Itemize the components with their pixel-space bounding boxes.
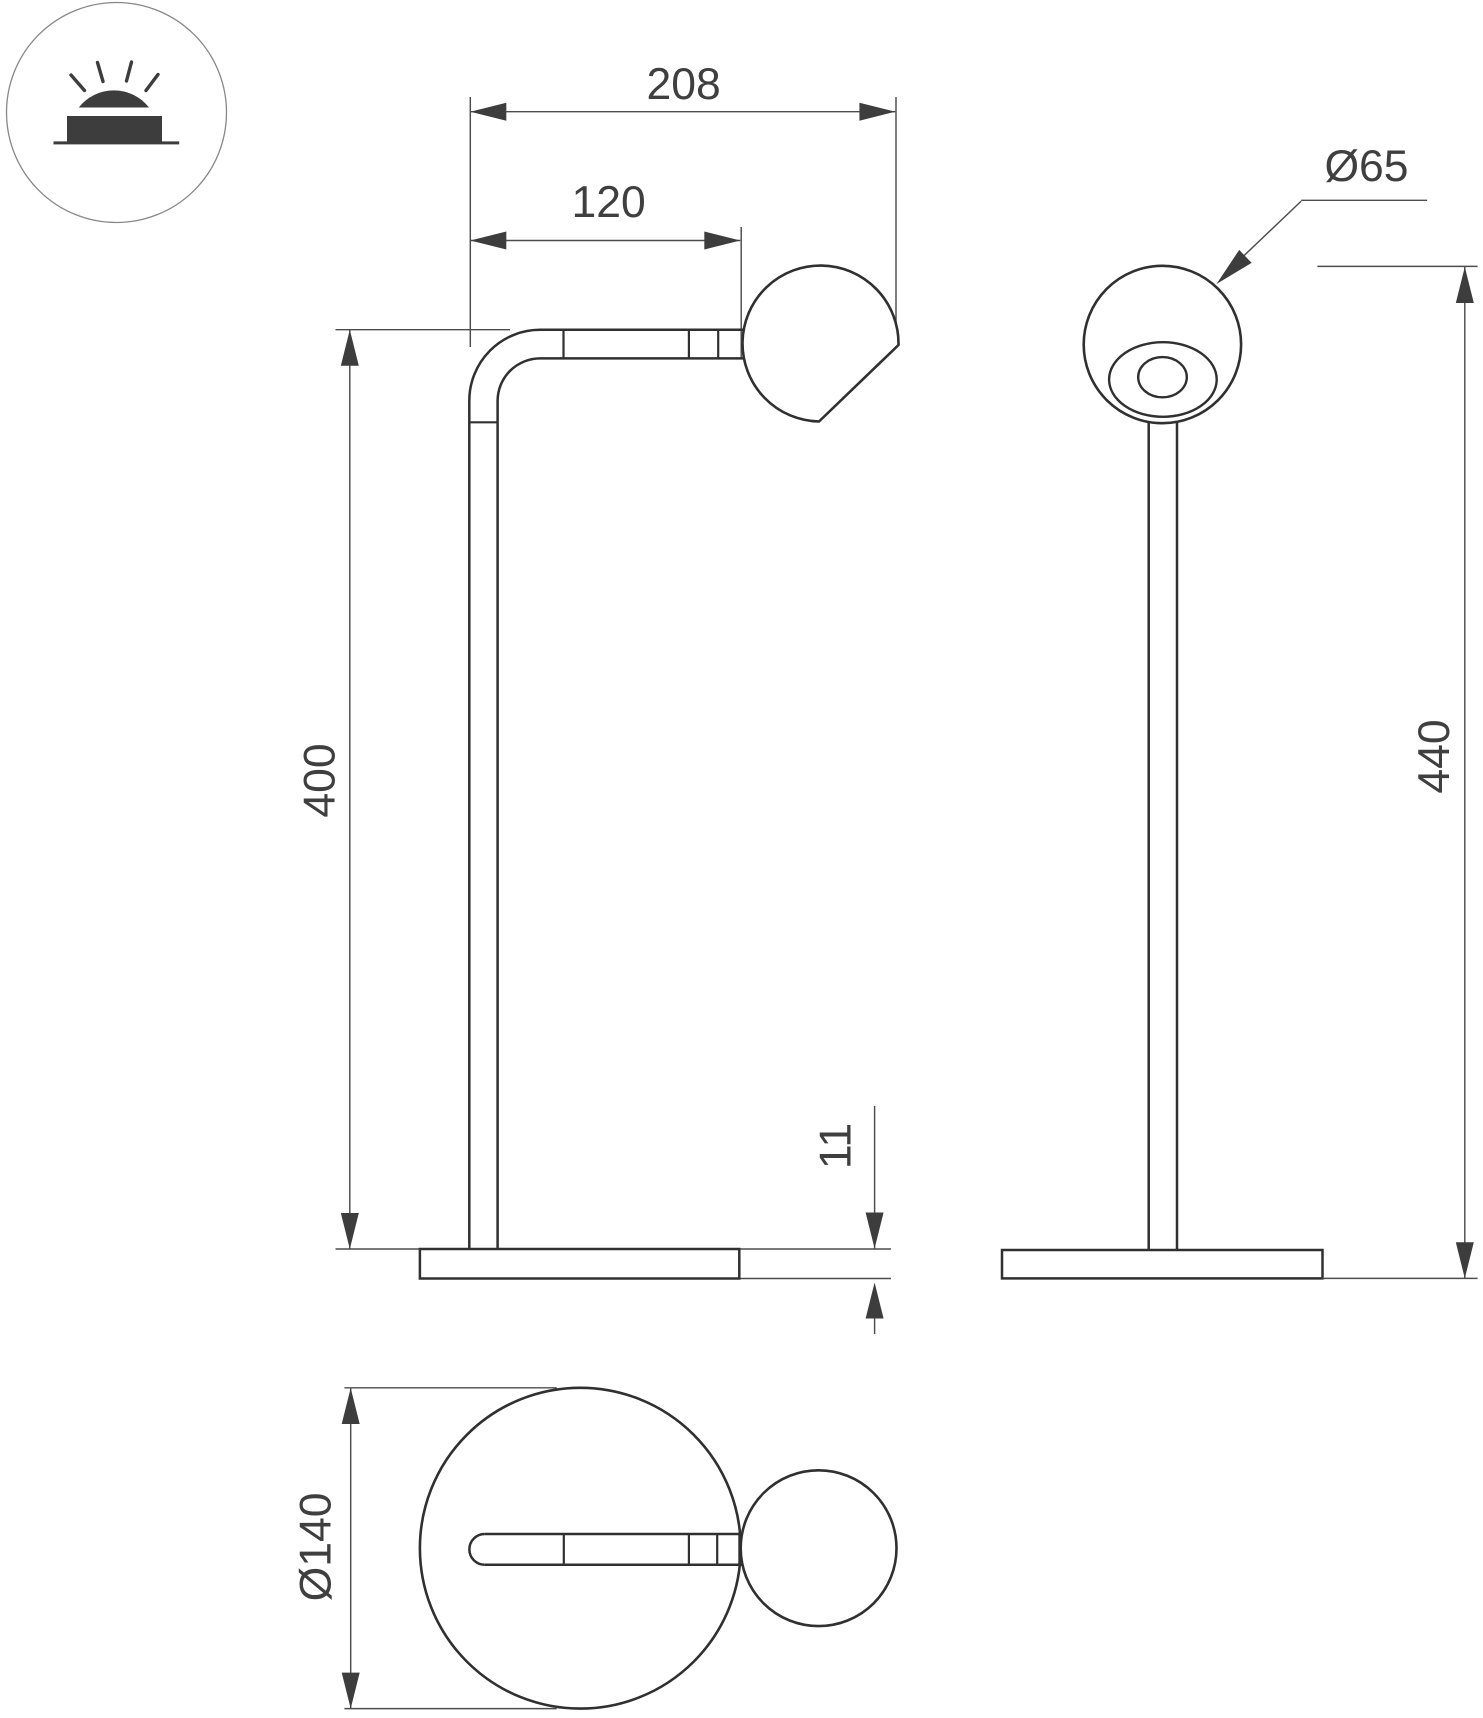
svg-text:208: 208 <box>646 60 720 109</box>
svg-text:440: 440 <box>1410 719 1459 793</box>
svg-text:11: 11 <box>811 1123 860 1169</box>
svg-text:400: 400 <box>295 743 344 817</box>
svg-text:120: 120 <box>571 178 645 227</box>
svg-text:Ø65: Ø65 <box>1324 142 1408 191</box>
svg-text:Ø140: Ø140 <box>291 1492 340 1601</box>
